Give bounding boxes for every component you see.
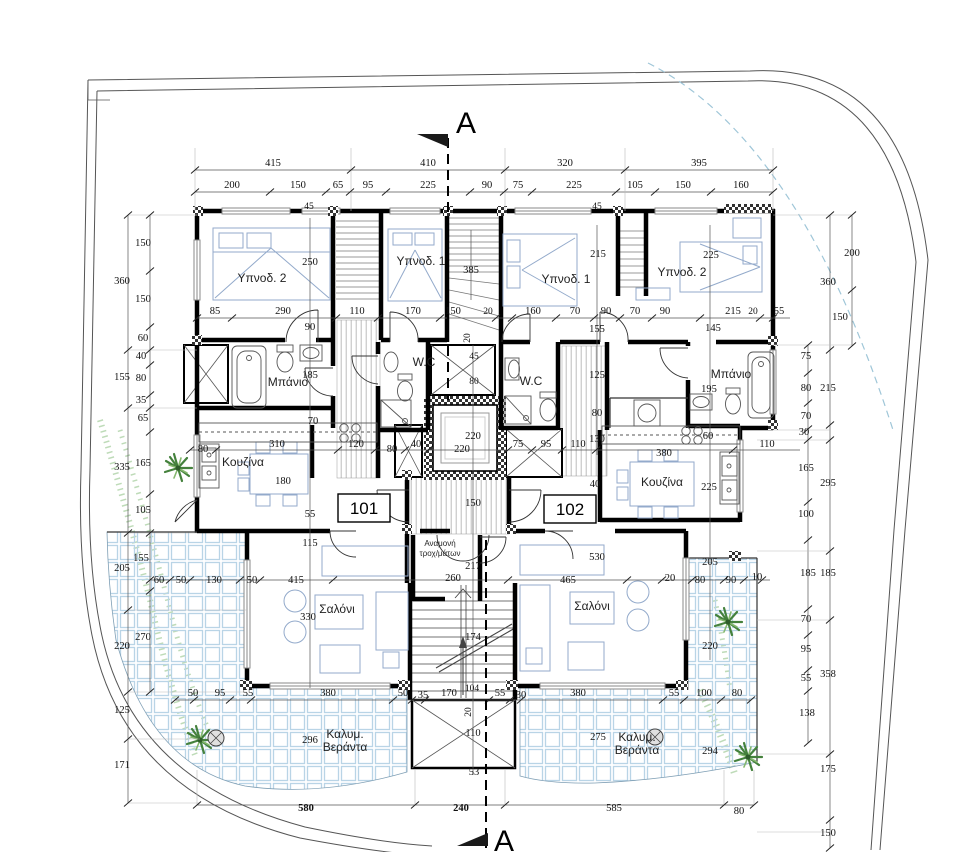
- bed-right-1: [503, 234, 577, 306]
- dim-label: 150: [820, 828, 836, 839]
- dim-label: 95: [215, 688, 226, 699]
- dim-label: 80: [734, 806, 745, 817]
- dim-label: 130: [589, 434, 605, 445]
- dim-label: 100: [696, 688, 712, 699]
- dim-label: 45: [592, 202, 602, 212]
- dim-label: 240: [453, 803, 469, 814]
- dim-label: 65: [138, 413, 149, 424]
- dim-label: 295: [820, 478, 836, 489]
- dim-label: 60: [154, 575, 165, 586]
- dim-label: 145: [705, 323, 721, 334]
- dim-label: 185: [800, 568, 816, 579]
- stair-strip-left: [336, 221, 381, 299]
- dim-label: 200: [224, 180, 240, 191]
- dim-label: 580: [298, 803, 314, 814]
- dim-label: 80: [387, 444, 398, 455]
- dim-label: 180: [275, 476, 291, 487]
- dim-label: 55: [774, 306, 785, 317]
- dim-label: 380: [570, 688, 586, 699]
- dim-label: 105: [135, 505, 151, 516]
- room-label-wheel-1: Αναμονή: [424, 539, 455, 548]
- floor-plan-canvas: A A 101 102 Υπνοδ. 2 Υπνοδ. 1 Υπνοδ. 1 Υ…: [0, 0, 953, 852]
- dim-label: 380: [320, 688, 336, 699]
- dim-label: 40: [590, 479, 601, 490]
- dim-label: 360: [820, 277, 836, 288]
- sink-bath-right: [690, 394, 712, 410]
- dim-label: 200: [844, 248, 860, 259]
- dim-label: 55: [305, 509, 316, 520]
- toilet-bath-right: [726, 388, 741, 414]
- dim-label: 90: [482, 180, 493, 191]
- dim-label: 358: [820, 669, 836, 680]
- dim-label: 95: [801, 644, 812, 655]
- dim-label: 35: [136, 395, 147, 406]
- dim-label: 75: [513, 439, 524, 450]
- kitchen-counter-right: [602, 426, 740, 504]
- dim-label: 110: [465, 728, 480, 739]
- room-label-kitchen-right: Κουζίνα: [641, 475, 683, 489]
- dim-label: 215: [590, 249, 606, 260]
- dim-label: 415: [288, 575, 304, 586]
- dim-label: 110: [570, 439, 585, 450]
- window-top-1: [222, 208, 290, 214]
- washer-right: [634, 400, 660, 426]
- dim-label: 185: [820, 568, 836, 579]
- dim-label: 150: [465, 498, 481, 509]
- dim-label: 155: [589, 324, 605, 335]
- room-label-bed2-right: Υπνοδ. 2: [658, 265, 707, 279]
- apartment-label-102: 102: [556, 500, 584, 519]
- dim-label: 75: [801, 351, 812, 362]
- dim-label: 125: [114, 705, 130, 716]
- apartment-label-101: 101: [350, 499, 378, 518]
- window-bath-right: [770, 350, 776, 414]
- dim-label: 80: [695, 575, 706, 586]
- dim-label: 53: [469, 767, 480, 778]
- dim-label: 150: [135, 238, 151, 249]
- room-label-veranda-right-2: Βεράντα: [615, 743, 660, 757]
- dim-label: 104: [465, 684, 480, 694]
- dim-label: 155: [114, 372, 130, 383]
- dim-label: 115: [302, 538, 317, 549]
- floor-plan-svg: A A 101 102 Υπνοδ. 2 Υπνοδ. 1 Υπνοδ. 1 Υ…: [0, 0, 953, 852]
- sink-bath-left: [300, 345, 322, 361]
- dim-label: 45: [469, 352, 479, 362]
- dim-label: 138: [799, 708, 815, 719]
- dim-label: 120: [348, 439, 364, 450]
- dim-label: 55: [669, 688, 680, 699]
- toilet-bath-left: [277, 345, 293, 372]
- dim-label: 225: [420, 180, 436, 191]
- window-top-4: [515, 208, 591, 214]
- room-label-bed1-left: Υπνοδ. 1: [397, 254, 446, 268]
- dim-label: 65: [333, 180, 344, 191]
- dim-label: 217: [465, 561, 481, 572]
- dim-label: 30: [799, 427, 810, 438]
- dim-label: 80: [469, 377, 479, 387]
- dim-label: 95: [363, 180, 374, 191]
- window-kitchen-right: [737, 440, 743, 512]
- dim-label: 335: [114, 462, 130, 473]
- dim-label: 20: [748, 307, 758, 317]
- section-flag-top: [417, 134, 448, 147]
- dim-label: 225: [701, 482, 717, 493]
- dim-label: 80: [732, 688, 743, 699]
- dim-label: 30: [516, 690, 527, 701]
- dim-label: 195: [701, 384, 717, 395]
- dim-label: 90: [305, 322, 316, 333]
- room-label-bath-right: Μπάνιο: [711, 367, 752, 381]
- dim-label: 205: [114, 563, 130, 574]
- dim-label: 296: [302, 735, 318, 746]
- dim-label: 220: [465, 431, 481, 442]
- dim-label: 185: [302, 370, 318, 381]
- dim-label: 60: [138, 333, 149, 344]
- dim-label: 380: [656, 448, 672, 459]
- dim-label: 70: [801, 614, 812, 625]
- dim-label: 20: [464, 707, 474, 717]
- room-label-bed2-left: Υπνοδ. 2: [238, 271, 287, 285]
- dim-label: 415: [265, 158, 281, 169]
- dim-label: 150: [832, 312, 848, 323]
- dim-label: 530: [589, 552, 605, 563]
- dim-label: 385: [463, 265, 479, 276]
- dim-label: 150: [675, 180, 691, 191]
- dim-label: 70: [630, 306, 641, 317]
- dim-label: 294: [702, 746, 719, 757]
- dim-label: 10: [752, 572, 763, 583]
- dim-label: 105: [627, 180, 643, 191]
- room-label-veranda-right-1: Καλυμ.: [618, 730, 655, 744]
- dim-label: 585: [606, 803, 622, 814]
- dim-label: 130: [206, 575, 222, 586]
- window-living-right-e: [683, 558, 689, 640]
- room-label-wc-left: W.C: [413, 355, 436, 369]
- dim-label: 125: [589, 370, 605, 381]
- bathtub-left: [232, 346, 266, 408]
- window-top-3: [390, 208, 440, 214]
- section-flag-bottom: [457, 833, 488, 846]
- dim-label: 165: [798, 463, 814, 474]
- dim-label: 410: [420, 158, 436, 169]
- room-label-veranda-left-1: Καλυμ.: [326, 727, 363, 741]
- wc-left-fixtures: [381, 352, 413, 427]
- bed-right-2: [636, 218, 762, 300]
- room-label-kitchen-left: Κουζίνα: [222, 455, 264, 469]
- dim-label: 395: [691, 158, 707, 169]
- dim-label: 85: [210, 306, 221, 317]
- dim-label: 155: [133, 553, 149, 564]
- dim-label: 60: [703, 431, 714, 442]
- dim-label: 220: [114, 641, 130, 652]
- dim-label: 70: [308, 416, 319, 427]
- dim-label: 270: [135, 632, 151, 643]
- dining-table-left: [238, 442, 308, 506]
- dim-label: 70: [570, 306, 581, 317]
- dim-label: 215: [725, 306, 741, 317]
- dim-label: 110: [759, 439, 774, 450]
- room-label-wheel-2: τροχ/μάτων: [420, 549, 461, 558]
- dim-label: 250: [302, 257, 318, 268]
- dim-label: 175: [820, 764, 836, 775]
- dim-label: 171: [114, 760, 130, 771]
- room-label-living-right: Σαλόνι: [574, 599, 610, 613]
- dim-label: 90: [726, 575, 737, 586]
- section-label-top: A: [456, 107, 476, 140]
- dim-label: 320: [557, 158, 573, 169]
- dim-label: 220: [454, 444, 470, 455]
- dim-label: 275: [590, 732, 606, 743]
- dim-label: 55: [801, 673, 812, 684]
- dim-label: 40: [136, 351, 147, 362]
- room-label-living-left: Σαλόνι: [319, 602, 355, 616]
- stair-strip-right: [620, 231, 646, 287]
- dim-label: 465: [560, 575, 576, 586]
- dim-label: 290: [275, 306, 291, 317]
- window-left-bed: [194, 240, 200, 300]
- dim-label: 70: [801, 411, 812, 422]
- room-label-bed1-right: Υπνοδ. 1: [542, 272, 591, 286]
- dim-label: 150: [290, 180, 306, 191]
- dim-label: 160: [525, 306, 541, 317]
- main-staircase: [412, 585, 515, 698]
- dim-label: 260: [445, 573, 461, 584]
- dim-label: 220: [702, 641, 718, 652]
- dim-label: 80: [136, 373, 147, 384]
- dim-label: 50: [398, 688, 409, 699]
- dim-label: 360: [114, 276, 130, 287]
- dim-label: 170: [441, 688, 457, 699]
- dim-label: 55: [243, 688, 254, 699]
- window-top-5: [655, 208, 717, 214]
- window-living-right-s: [540, 683, 665, 689]
- dim-label: 150: [135, 294, 151, 305]
- dim-label: 80: [198, 444, 209, 455]
- dim-label: 75: [513, 180, 524, 191]
- room-label-wc-right: W.C: [520, 374, 543, 388]
- dim-label: 20: [463, 333, 473, 343]
- dim-label: 225: [703, 250, 719, 261]
- dim-label: 310: [269, 439, 285, 450]
- dim-label: 90: [601, 306, 612, 317]
- section-label-bottom: A: [494, 825, 514, 852]
- dim-label: 110: [349, 306, 364, 317]
- dim-label: 165: [135, 458, 151, 469]
- dim-label: 45: [304, 202, 314, 212]
- dim-label: 90: [660, 306, 671, 317]
- dim-label: 55: [495, 688, 506, 699]
- dim-label: 35: [418, 690, 429, 701]
- dim-label: 205: [702, 557, 718, 568]
- dim-label: 20: [483, 307, 493, 317]
- dim-label: 40: [411, 439, 422, 450]
- dim-label: 170: [405, 306, 421, 317]
- dim-label: 95: [541, 439, 552, 450]
- dim-label: 160: [733, 180, 749, 191]
- dim-label: 80: [592, 408, 603, 419]
- dim-label: 215: [820, 383, 836, 394]
- dim-label: 150: [445, 306, 461, 317]
- wc-right-fixtures: [505, 358, 556, 424]
- dim-label: 225: [566, 180, 582, 191]
- room-label-veranda-left-2: Βεράντα: [323, 740, 368, 754]
- dim-label: 50: [176, 575, 187, 586]
- dim-label: 50: [247, 575, 258, 586]
- dim-label: 100: [798, 509, 814, 520]
- dim-label: 80: [801, 383, 812, 394]
- dim-label: 174: [465, 632, 482, 643]
- dim-label: 20: [665, 573, 676, 584]
- dim-label: 330: [300, 612, 316, 623]
- dim-label: 50: [188, 688, 199, 699]
